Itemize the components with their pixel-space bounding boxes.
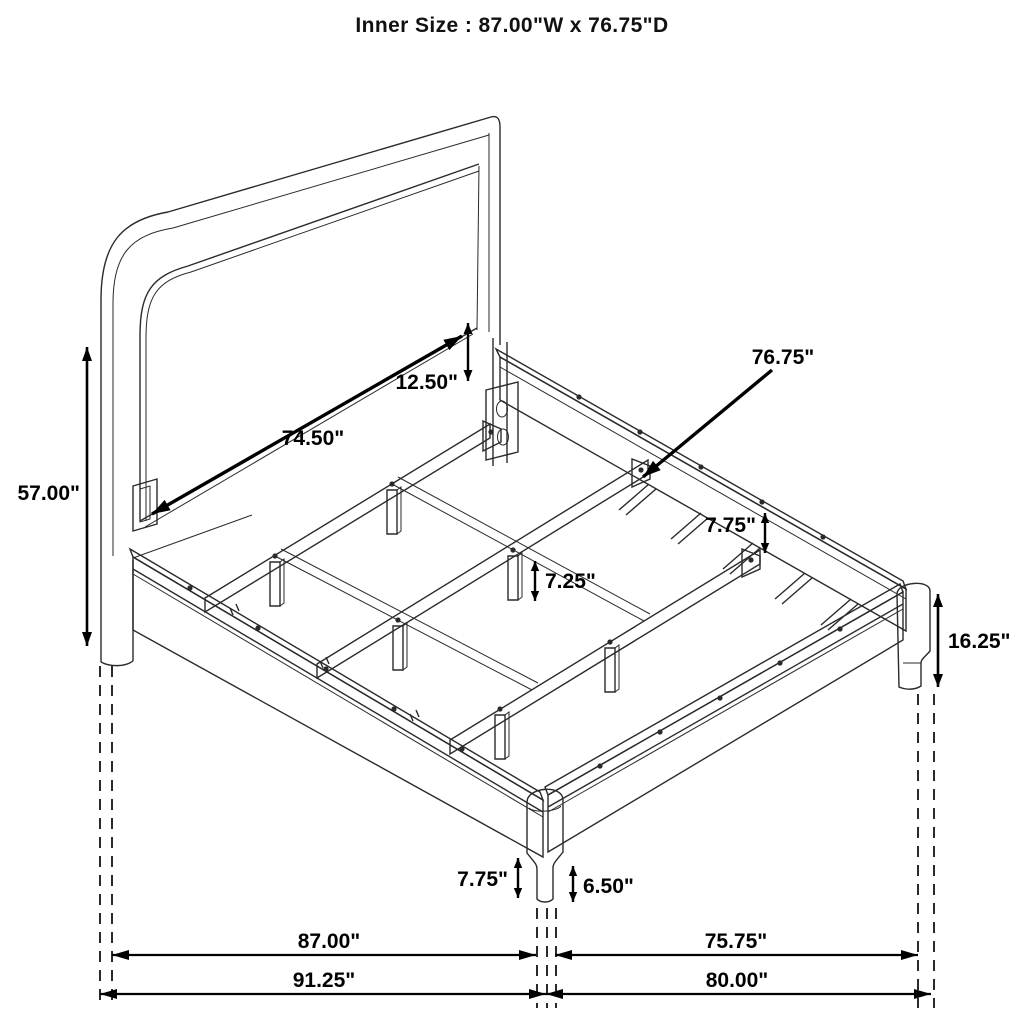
headboard-frame-edge <box>113 135 489 556</box>
headboard-bottom-edge <box>133 515 252 558</box>
footboard-rail <box>545 584 903 852</box>
screw-dot <box>607 639 612 644</box>
dimension-front-leg-height: 6.50" <box>569 866 634 902</box>
dimension-label-panel-to-rail-gap: 12.50" <box>395 371 458 394</box>
dimension-label-center-leg-height: 7.25" <box>545 570 596 593</box>
dimension-label-inner-depth: 75.75" <box>705 930 768 953</box>
right-rail-bracket <box>486 382 518 460</box>
screw-dot <box>497 706 502 711</box>
slat-support-grid <box>205 421 760 759</box>
headboard-panel-seam-outer <box>140 164 479 521</box>
screw-dot <box>777 660 782 665</box>
screw-dot <box>391 706 396 711</box>
dimension-label-slat-rail-length: 76.75" <box>752 346 815 369</box>
right-rail-ledge-line <box>500 367 906 599</box>
slat-stubs <box>619 484 858 630</box>
dimension-label-front-rail-height: 7.75" <box>457 868 508 891</box>
cross-rail-2 <box>317 460 648 678</box>
dimension-front-rail-height: 7.75" <box>457 858 522 898</box>
dimension-outer-depth: 80.00" <box>546 969 931 999</box>
left-rail-seam <box>133 569 543 812</box>
dimension-headboard-height: 57.00" <box>17 347 92 646</box>
dimension-inner-width: 87.00" <box>112 930 536 960</box>
screw-dot <box>748 557 753 562</box>
screw-dot <box>255 625 260 630</box>
footboard-top-face <box>545 584 903 795</box>
screw-dot <box>597 763 602 768</box>
footboard-front-face <box>548 592 903 852</box>
screw-dot <box>638 467 643 472</box>
dimension-slat-rail-length: 76.75" <box>643 346 814 477</box>
screw-dot <box>488 429 493 434</box>
dimension-label-inner-width: 87.00" <box>298 930 361 953</box>
screw-dot <box>657 729 662 734</box>
screw-dot <box>389 481 394 486</box>
projection-lines <box>100 666 934 1008</box>
dimension-panel-to-rail-gap: 12.50" <box>395 323 472 394</box>
headboard-left-leg-bottom <box>101 661 133 666</box>
screw-dot <box>637 429 642 434</box>
headboard-panel-right-edge <box>477 166 479 330</box>
dimension-label-outer-width: 91.25" <box>293 969 356 992</box>
stringer-2 <box>392 477 650 621</box>
dimension-label-front-leg-height: 6.50" <box>583 875 634 898</box>
dimension-label-footboard-height: 16.25" <box>948 630 1011 653</box>
dimension-label-headboard-height: 57.00" <box>17 482 80 505</box>
footboard-seam <box>548 604 903 807</box>
screw-dot <box>459 746 464 751</box>
screw-dot <box>272 553 277 558</box>
stringer-1 <box>275 549 538 690</box>
dimension-annotations: 57.00"74.50"12.50"76.75"7.75"7.25"16.25"… <box>17 323 1010 999</box>
screw-dot <box>820 534 825 539</box>
dimension-footboard-height: 16.25" <box>933 594 1011 687</box>
screw-dot <box>510 547 515 552</box>
screw-dot <box>837 626 842 631</box>
dimension-label-rear-rail-height: 7.75" <box>705 514 756 537</box>
footboard-seam2 <box>548 609 903 812</box>
screw-dot <box>698 464 703 469</box>
dimension-label-outer-depth: 80.00" <box>706 969 769 992</box>
screw-dot <box>187 585 192 590</box>
dimension-outer-width: 91.25" <box>100 969 546 999</box>
bed-frame-diagram: 57.00"74.50"12.50"76.75"7.75"7.25"16.25"… <box>0 0 1024 1024</box>
left-side-rail <box>130 549 543 857</box>
dimension-inner-depth: 75.75" <box>555 930 918 960</box>
dimension-headboard-panel-width: 74.50" <box>152 336 462 514</box>
support-legs <box>270 487 619 759</box>
screw-dot <box>576 394 581 399</box>
screw-dot <box>395 617 400 622</box>
screw-dot <box>323 666 328 671</box>
left-rail-seam2 <box>133 574 543 817</box>
screw-dot <box>759 499 764 504</box>
screw-dot <box>717 695 722 700</box>
left-rail-front-face <box>133 557 543 857</box>
dimension-label-headboard-panel-width: 74.50" <box>282 427 345 450</box>
headboard-panel-seam-inner <box>146 171 479 521</box>
right-foot-post <box>897 583 930 689</box>
right-post-body <box>897 583 930 689</box>
left-rail-bracket <box>133 479 157 531</box>
